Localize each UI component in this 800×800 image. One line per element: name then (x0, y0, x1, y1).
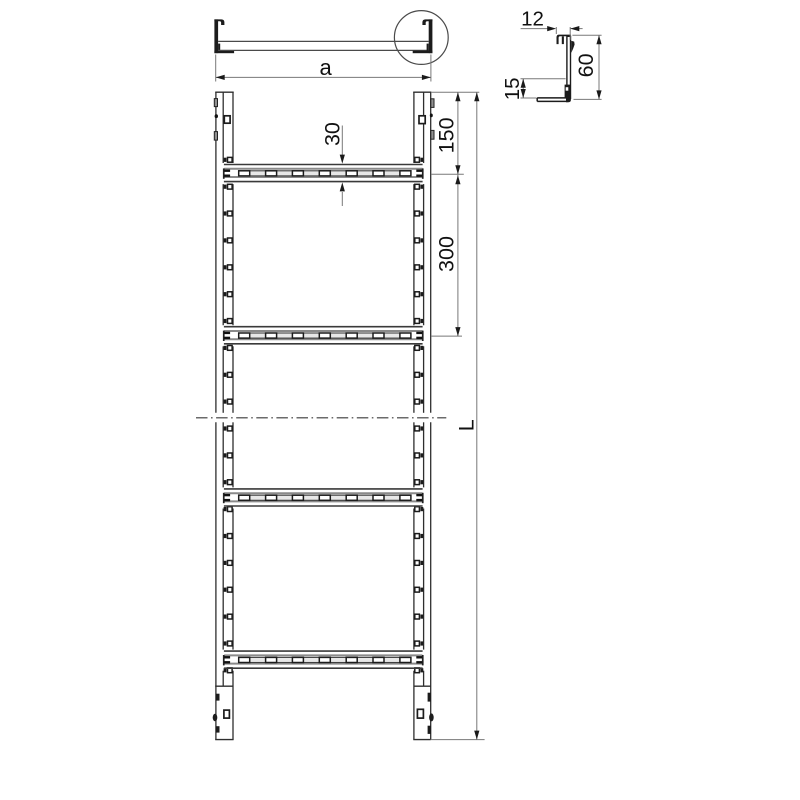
svg-text:150: 150 (435, 117, 459, 153)
svg-text:12: 12 (521, 8, 544, 31)
svg-text:300: 300 (435, 236, 459, 272)
svg-text:a: a (319, 55, 332, 80)
svg-text:15: 15 (501, 77, 524, 100)
svg-text:L: L (454, 419, 478, 431)
svg-text:60: 60 (574, 53, 598, 77)
svg-text:30: 30 (321, 122, 345, 146)
